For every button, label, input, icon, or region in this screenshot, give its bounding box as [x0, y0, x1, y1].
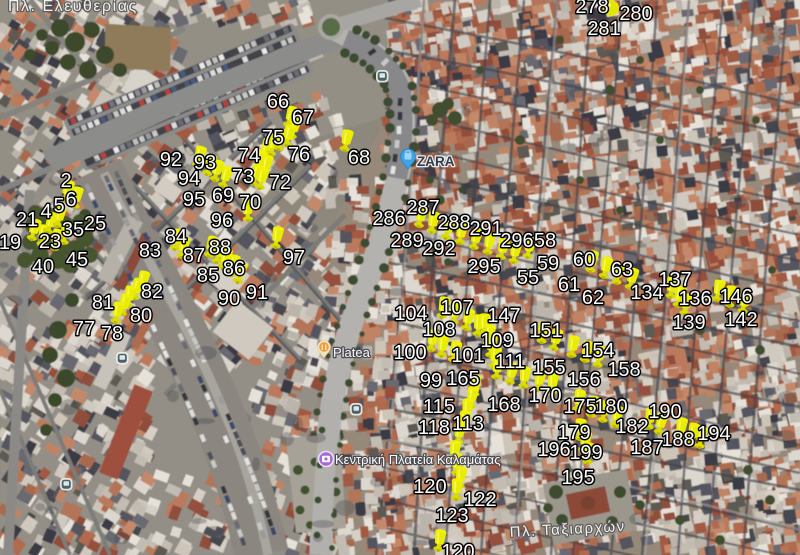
svg-text:72: 72 [269, 172, 291, 194]
svg-text:74: 74 [238, 145, 260, 167]
svg-text:120: 120 [441, 541, 474, 555]
svg-text:120: 120 [413, 476, 446, 498]
svg-text:292: 292 [422, 238, 455, 260]
svg-text:158: 158 [607, 359, 640, 381]
svg-text:155: 155 [532, 357, 565, 379]
svg-text:87: 87 [183, 245, 205, 267]
svg-text:100: 100 [393, 342, 426, 364]
svg-text:182: 182 [615, 416, 648, 438]
svg-text:151: 151 [529, 320, 562, 342]
svg-text:281: 281 [587, 18, 620, 40]
svg-text:75: 75 [262, 127, 284, 149]
svg-text:278: 278 [575, 0, 608, 18]
svg-text:4: 4 [40, 201, 51, 223]
svg-text:35: 35 [62, 219, 84, 241]
svg-text:69: 69 [212, 185, 234, 207]
svg-text:187: 187 [630, 437, 663, 459]
svg-text:55: 55 [517, 267, 539, 289]
svg-text:58: 58 [534, 230, 556, 252]
svg-text:107: 107 [440, 297, 473, 319]
svg-text:95: 95 [183, 189, 205, 211]
svg-text:296: 296 [500, 230, 533, 252]
svg-text:68: 68 [348, 147, 370, 169]
svg-text:280: 280 [619, 3, 652, 25]
svg-text:21: 21 [16, 209, 38, 231]
svg-text:108: 108 [422, 319, 455, 341]
svg-text:5: 5 [53, 195, 64, 217]
svg-text:Κεντρική Πλατεία Καλαμάτας: Κεντρική Πλατεία Καλαμάτας [335, 452, 500, 467]
svg-text:156: 156 [567, 369, 600, 391]
svg-text:111: 111 [495, 351, 525, 373]
svg-text:25: 25 [84, 213, 106, 235]
svg-text:170: 170 [528, 385, 561, 407]
svg-text:ZARA: ZARA [417, 154, 455, 169]
svg-text:196: 196 [537, 439, 570, 461]
svg-text:168: 168 [487, 394, 520, 416]
svg-text:295: 295 [467, 256, 500, 278]
svg-text:70: 70 [239, 192, 261, 214]
svg-text:40: 40 [32, 256, 54, 278]
svg-text:142: 142 [724, 309, 757, 331]
svg-text:78: 78 [101, 323, 123, 345]
svg-text:63: 63 [611, 259, 633, 281]
svg-text:88: 88 [209, 237, 231, 259]
svg-text:194: 194 [697, 423, 730, 445]
svg-text:289: 289 [390, 230, 423, 252]
svg-text:195: 195 [561, 467, 594, 489]
svg-text:Πλ. Ελευθερίας: Πλ. Ελευθερίας [8, 0, 138, 15]
svg-text:113: 113 [452, 413, 484, 435]
svg-text:180: 180 [594, 396, 627, 418]
svg-text:80: 80 [130, 305, 152, 327]
svg-text:76: 76 [288, 144, 310, 166]
svg-text:286: 286 [372, 208, 405, 230]
svg-text:94: 94 [178, 168, 200, 190]
svg-text:165: 165 [446, 368, 479, 390]
svg-text:83: 83 [139, 240, 161, 262]
svg-text:82: 82 [141, 281, 163, 303]
svg-text:66: 66 [267, 91, 289, 113]
svg-text:115: 115 [423, 396, 455, 418]
svg-text:99: 99 [420, 370, 442, 392]
svg-text:67: 67 [292, 107, 314, 129]
svg-text:91: 91 [246, 282, 268, 304]
svg-text:101: 101 [451, 345, 484, 367]
svg-text:81: 81 [92, 292, 114, 314]
svg-text:188: 188 [661, 429, 694, 451]
svg-text:199: 199 [569, 442, 602, 464]
svg-text:136: 136 [678, 288, 711, 310]
svg-text:175: 175 [563, 396, 596, 418]
svg-text:60: 60 [573, 249, 595, 271]
svg-text:190: 190 [648, 401, 681, 423]
svg-text:287: 287 [406, 197, 439, 219]
svg-text:147: 147 [487, 305, 520, 327]
svg-text:139: 139 [672, 312, 705, 334]
svg-text:85: 85 [197, 265, 219, 287]
svg-text:118: 118 [418, 417, 450, 439]
svg-text:62: 62 [582, 287, 604, 309]
svg-text:97: 97 [283, 247, 305, 269]
svg-text:96: 96 [211, 210, 233, 232]
svg-text:Platea: Platea [333, 345, 371, 360]
svg-text:45: 45 [66, 249, 88, 271]
svg-text:61: 61 [558, 274, 580, 296]
svg-text:291: 291 [469, 218, 502, 240]
svg-text:90: 90 [218, 288, 240, 310]
svg-text:23: 23 [39, 231, 61, 253]
svg-text:73: 73 [232, 166, 254, 188]
svg-text:19: 19 [0, 232, 21, 254]
svg-text:123: 123 [435, 505, 468, 527]
svg-text:77: 77 [73, 318, 95, 340]
svg-text:6: 6 [65, 189, 76, 211]
svg-text:146: 146 [719, 286, 752, 308]
svg-text:109: 109 [480, 330, 513, 352]
svg-text:288: 288 [437, 212, 470, 234]
svg-text:86: 86 [223, 258, 245, 280]
svg-text:59: 59 [537, 253, 559, 275]
